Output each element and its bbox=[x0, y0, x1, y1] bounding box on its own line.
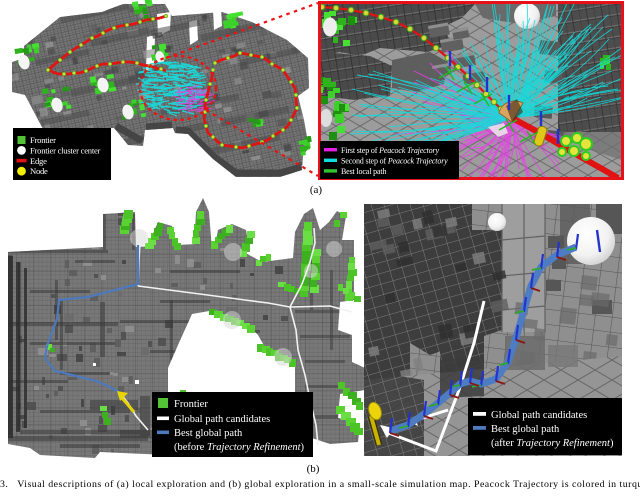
svg-text:(after Trajectory Refinement): (after Trajectory Refinement) bbox=[491, 438, 614, 449]
svg-text:Frontier: Frontier bbox=[174, 399, 208, 410]
svg-text:Global path candidates: Global path candidates bbox=[491, 410, 587, 421]
svg-text:Best global path: Best global path bbox=[174, 428, 243, 439]
svg-text:(b): (b) bbox=[307, 463, 320, 475]
svg-text:Frontier: Frontier bbox=[30, 135, 56, 145]
svg-text:Global path candidates: Global path candidates bbox=[174, 414, 270, 425]
svg-text:(before Trajectory Refinement): (before Trajectory Refinement) bbox=[174, 442, 305, 453]
svg-text:(a): (a) bbox=[310, 184, 323, 196]
svg-text:First step of Peacock Trajecto: First step of Peacock Trajectory bbox=[341, 146, 439, 155]
svg-text:Frontier cluster center: Frontier cluster center bbox=[30, 145, 101, 155]
svg-text:Second step of Peacock Traject: Second step of Peacock Trajectory bbox=[341, 157, 448, 166]
svg-text:3. Visual descriptions of (a: 3. Visual descriptions of (a) local expl… bbox=[0, 479, 640, 490]
svg-text:Edge: Edge bbox=[30, 156, 47, 166]
svg-text:Best global path: Best global path bbox=[491, 424, 560, 435]
svg-text:Node: Node bbox=[30, 166, 48, 176]
svg-text:Best local path: Best local path bbox=[341, 167, 386, 176]
